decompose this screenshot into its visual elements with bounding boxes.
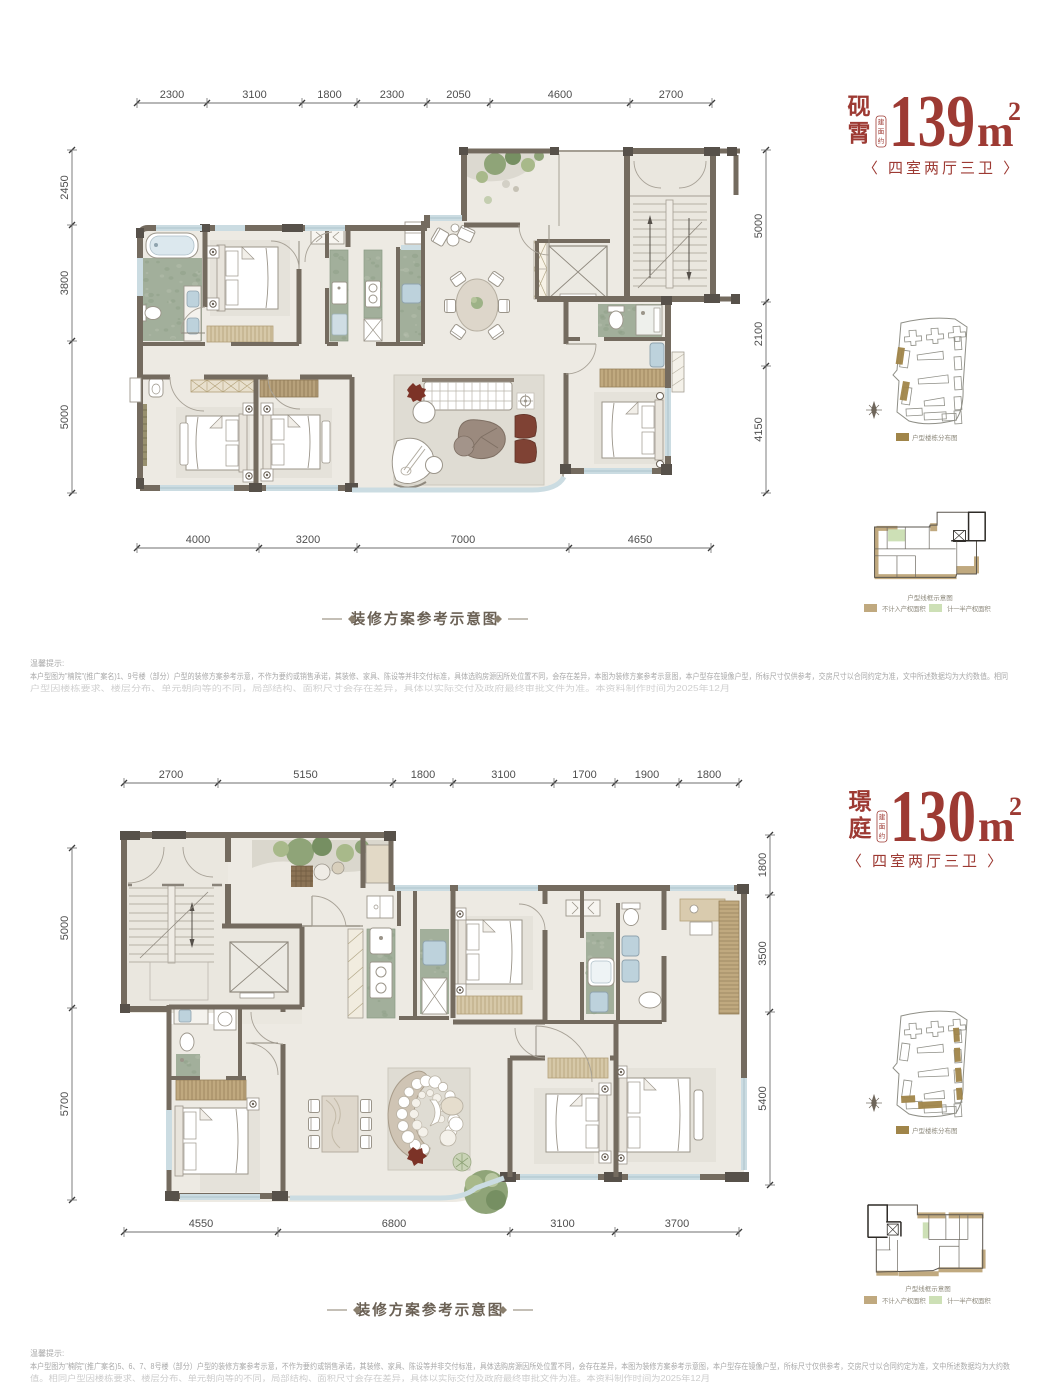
svg-text:5150: 5150 xyxy=(293,769,317,781)
svg-text:3100: 3100 xyxy=(491,769,515,781)
svg-text:璟: 璟 xyxy=(849,789,872,814)
svg-text:装修方案参考示意图: 装修方案参考示意图 xyxy=(350,610,500,628)
svg-text:〈 四室两厅三卫 〉: 〈 四室两厅三卫 〉 xyxy=(863,160,1021,177)
svg-text:5700: 5700 xyxy=(59,1092,71,1116)
svg-text:6800: 6800 xyxy=(382,1218,406,1230)
svg-text:建: 建 xyxy=(879,812,886,821)
svg-text:3500: 3500 xyxy=(757,941,769,965)
svg-text:3800: 3800 xyxy=(59,271,71,295)
svg-text:户型线框示意图: 户型线框示意图 xyxy=(907,593,953,602)
svg-text:4000: 4000 xyxy=(186,534,210,546)
svg-text:1800: 1800 xyxy=(697,769,721,781)
svg-text:户型楼栋分布图: 户型楼栋分布图 xyxy=(912,1126,958,1135)
svg-text:5000: 5000 xyxy=(753,214,765,238)
svg-text:2300: 2300 xyxy=(380,89,404,101)
svg-text:5000: 5000 xyxy=(59,405,71,429)
svg-text:户型线框示意图: 户型线框示意图 xyxy=(905,1284,951,1293)
svg-text:4550: 4550 xyxy=(189,1218,213,1230)
svg-text:3100: 3100 xyxy=(242,89,266,101)
svg-text:5000: 5000 xyxy=(59,916,71,940)
svg-text:4650: 4650 xyxy=(628,534,652,546)
svg-text:不计入产权面积: 不计入产权面积 xyxy=(882,1296,926,1305)
svg-text:4150: 4150 xyxy=(753,417,765,441)
svg-text:温馨提示:: 温馨提示: xyxy=(30,658,64,668)
svg-text:约: 约 xyxy=(879,831,886,840)
svg-text:温馨提示:: 温馨提示: xyxy=(30,1348,64,1358)
svg-text:户型楼栋分布图: 户型楼栋分布图 xyxy=(912,433,958,442)
svg-text:2100: 2100 xyxy=(753,322,765,346)
svg-text:2: 2 xyxy=(1008,97,1021,126)
svg-text:4600: 4600 xyxy=(548,89,572,101)
svg-text:本户型图为"楠院"(推广案名)1、9号楼（部分）户型的装修方: 本户型图为"楠院"(推广案名)1、9号楼（部分）户型的装修方案参考示意，不作为要… xyxy=(30,671,1008,681)
svg-text:不计入产权面积: 不计入产权面积 xyxy=(882,604,926,613)
svg-text:3100: 3100 xyxy=(550,1218,574,1230)
svg-text:1800: 1800 xyxy=(757,853,769,877)
svg-text:139: 139 xyxy=(889,81,975,163)
svg-text:霄: 霄 xyxy=(848,121,871,146)
svg-text:2700: 2700 xyxy=(659,89,683,101)
svg-text:2700: 2700 xyxy=(159,769,183,781)
svg-text:庭: 庭 xyxy=(849,815,872,841)
svg-text:计一半产权面积: 计一半产权面积 xyxy=(947,1296,991,1305)
svg-text:1800: 1800 xyxy=(317,89,341,101)
svg-text:2050: 2050 xyxy=(446,89,470,101)
svg-text:装修方案参考示意图: 装修方案参考示意图 xyxy=(355,1301,505,1319)
svg-text:值。相同户型因楼栋要求、楼层分布、单元朝向等的不同，局部结构: 值。相同户型因楼栋要求、楼层分布、单元朝向等的不同，局部结构、面积尺寸会存在差异… xyxy=(30,1373,710,1383)
svg-text:2450: 2450 xyxy=(59,175,71,199)
svg-text:计一半产权面积: 计一半产权面积 xyxy=(947,604,991,613)
svg-text:5400: 5400 xyxy=(757,1086,769,1110)
svg-text:〈 四室两厅三卫 〉: 〈 四室两厅三卫 〉 xyxy=(847,853,1005,870)
svg-text:1800: 1800 xyxy=(411,769,435,781)
svg-text:建: 建 xyxy=(878,117,885,126)
svg-text:面: 面 xyxy=(878,128,885,136)
svg-text:约: 约 xyxy=(878,136,885,145)
svg-text:3200: 3200 xyxy=(296,534,320,546)
svg-text:7000: 7000 xyxy=(451,534,475,546)
svg-text:本户型图为"楠院"(推广案名)5、6、7、8号楼（部分）户型: 本户型图为"楠院"(推广案名)5、6、7、8号楼（部分）户型的装修方案参考示意，… xyxy=(30,1361,1010,1371)
svg-text:1700: 1700 xyxy=(572,769,596,781)
svg-text:2: 2 xyxy=(1009,792,1022,821)
svg-text:户型因楼栋要求、楼层分布、单元朝向等的不同，局部结构、面积尺: 户型因楼栋要求、楼层分布、单元朝向等的不同，局部结构、面积尺寸会存在差异，具体以… xyxy=(30,683,730,693)
svg-text:砚: 砚 xyxy=(848,94,871,119)
svg-text:面: 面 xyxy=(879,823,886,831)
svg-text:1900: 1900 xyxy=(635,769,659,781)
svg-text:130: 130 xyxy=(890,776,976,858)
svg-text:3700: 3700 xyxy=(665,1218,689,1230)
svg-text:2300: 2300 xyxy=(160,89,184,101)
